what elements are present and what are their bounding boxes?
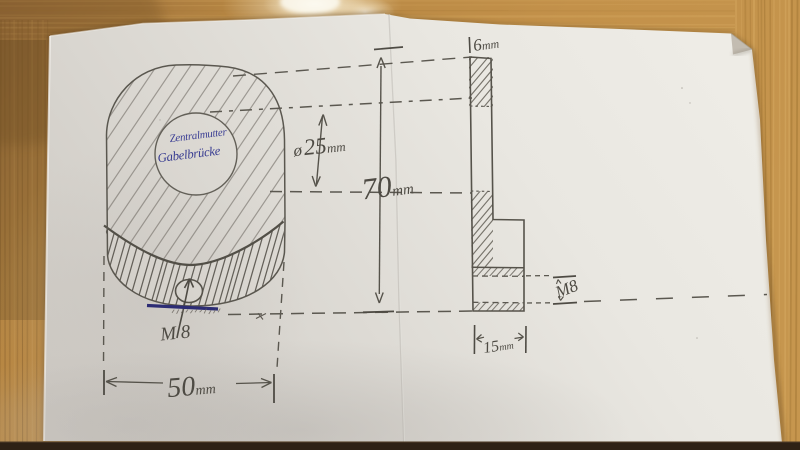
svg-text:M 8: M 8 [158, 321, 192, 345]
